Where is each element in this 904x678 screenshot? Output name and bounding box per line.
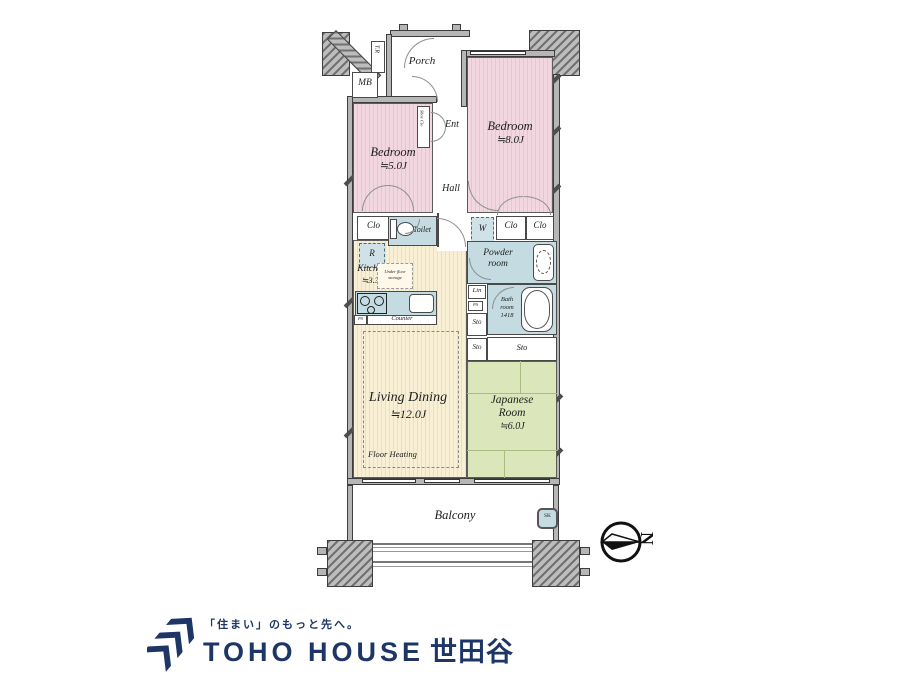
japanese-room-line1: Japanese [470, 394, 554, 406]
pipe-space-label: PS [468, 303, 483, 308]
bathtub-inner [524, 290, 550, 329]
wall-stub [580, 547, 590, 555]
washer-label: W [472, 224, 493, 233]
japanese-room [467, 361, 557, 478]
vanity-bowl [536, 250, 551, 274]
bedroom5-label: Bedroom [355, 146, 431, 159]
closet-label: Clo [358, 221, 389, 230]
toho-house-logo-mark [147, 610, 199, 672]
linen-label: Lin [468, 288, 486, 295]
porch-door-arc [404, 38, 434, 68]
logo-brand-name: TOHO HOUSE [203, 637, 424, 667]
japanese-window [474, 479, 550, 483]
storage-label: Sto [467, 344, 487, 351]
pipe-space-label: PS [354, 317, 367, 322]
hall-label: Hall [436, 184, 466, 195]
living-window [362, 479, 416, 483]
meter-box-label: MB [353, 79, 377, 89]
bedroom5-size: ≒5.0J [355, 161, 431, 173]
kitchen-sink [409, 294, 434, 313]
front-door-arc [412, 76, 438, 102]
shoe-closet-door-arc [431, 127, 446, 142]
shoe-closet-label: Shoe Clo [419, 110, 424, 126]
corner-block-bottom-left [327, 540, 373, 587]
toilet-tank [390, 219, 397, 239]
living-window2 [424, 479, 460, 483]
tatami-line [504, 450, 505, 478]
stove-burner [360, 296, 370, 306]
wall-stub [317, 568, 327, 576]
floor-heating-label: Floor Heating [368, 450, 458, 459]
stove-burner [367, 306, 375, 314]
floor-plan-page: T.R MB Porch Shoe Clo Ent Hall Bedroom ≒… [0, 0, 904, 678]
balcony-label: Balcony [418, 509, 492, 522]
underfloor-storage-line2: storage [378, 276, 412, 281]
tatami-line [520, 361, 521, 393]
underfloor-storage-line1: Under floor [378, 270, 412, 275]
slop-sink-label: SK [537, 514, 558, 520]
bedroom8-top-window [470, 51, 526, 55]
trunk-room-label: T.R [373, 45, 379, 53]
logo-region: 世田谷 [430, 637, 514, 667]
counter-label: Counter [368, 316, 436, 323]
stove-burner [374, 296, 384, 306]
bedroom8-label: Bedroom [469, 120, 551, 133]
wall-stub [452, 24, 461, 31]
closet-label: Clo [527, 221, 553, 230]
japanese-room-size: ≒6.0J [470, 422, 554, 433]
compass-north-label: N [636, 532, 657, 545]
porch-top-wall [390, 30, 470, 37]
storage-label: Sto [467, 319, 487, 326]
logo-brand: TOHO HOUSE世田谷 [203, 630, 514, 669]
japanese-room-line2: Room [470, 407, 554, 419]
bedroom8-size: ≒8.0J [469, 135, 551, 147]
living-dining-label: Living Dining [352, 391, 464, 406]
bath-line3: 1418 [490, 313, 524, 320]
wall-stub [399, 24, 408, 31]
living-dining-size: ≒12.0J [352, 408, 464, 421]
refrigerator-label: R [360, 249, 384, 258]
closet-label: Clo [497, 221, 525, 230]
balcony-left-post [347, 485, 353, 542]
shoe-closet-door-arc [431, 112, 446, 127]
storage-label: Sto [488, 343, 556, 352]
tatami-line [467, 450, 557, 451]
wall-stub [580, 568, 590, 576]
corner-block-bottom-right [532, 540, 580, 587]
wall-stub [317, 547, 327, 555]
